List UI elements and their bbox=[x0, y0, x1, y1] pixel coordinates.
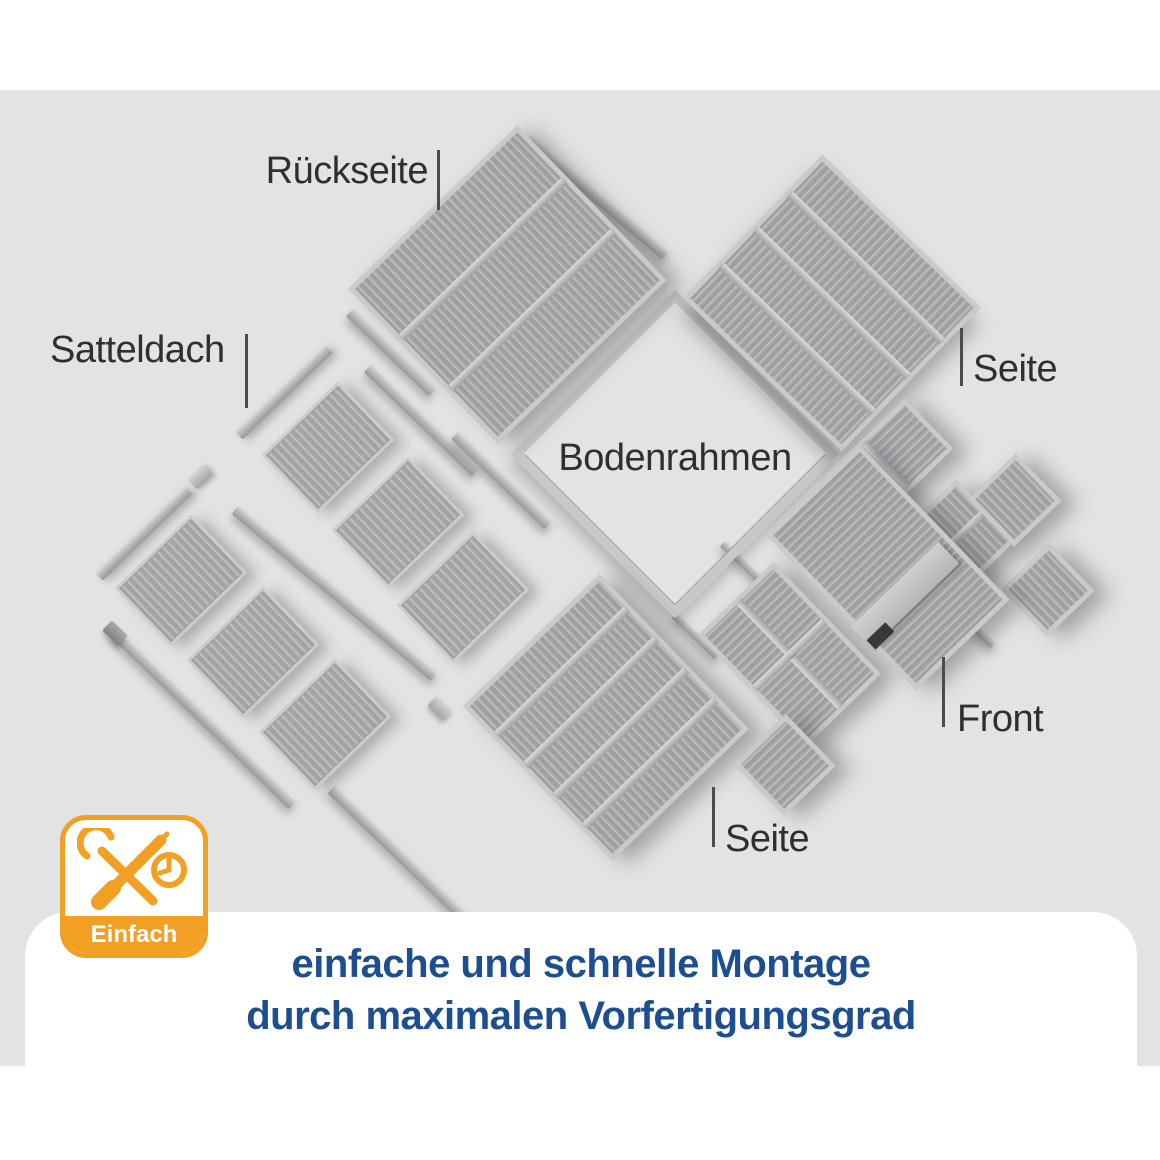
label-front: Front bbox=[957, 698, 1043, 741]
einfach-badge: Einfach bbox=[60, 815, 208, 958]
caption-headline: einfache und schnelle Montage durch maxi… bbox=[25, 938, 1137, 1042]
label-seite-bottom: Seite bbox=[725, 818, 809, 861]
label-bodenrahmen: Bodenrahmen bbox=[475, 437, 875, 480]
label-seite-top-line bbox=[960, 328, 963, 386]
caption-line-2: durch maximalen Vorfertigungsgrad bbox=[25, 990, 1137, 1042]
label-seite-top: Seite bbox=[973, 348, 1057, 391]
wrench-screwdriver-clock-icon bbox=[77, 828, 191, 918]
label-seite-bottom-line bbox=[712, 787, 715, 847]
label-rueckseite: Rückseite bbox=[266, 150, 428, 193]
label-front-line bbox=[942, 657, 945, 727]
caption-line-1: einfache und schnelle Montage bbox=[25, 938, 1137, 990]
label-satteldach: Satteldach bbox=[50, 329, 225, 372]
product-diagram-page: Rückseite Satteldach Seite Bodenrahmen F… bbox=[0, 0, 1160, 1160]
label-satteldach-line bbox=[245, 334, 248, 408]
label-rueckseite-line bbox=[437, 150, 440, 210]
